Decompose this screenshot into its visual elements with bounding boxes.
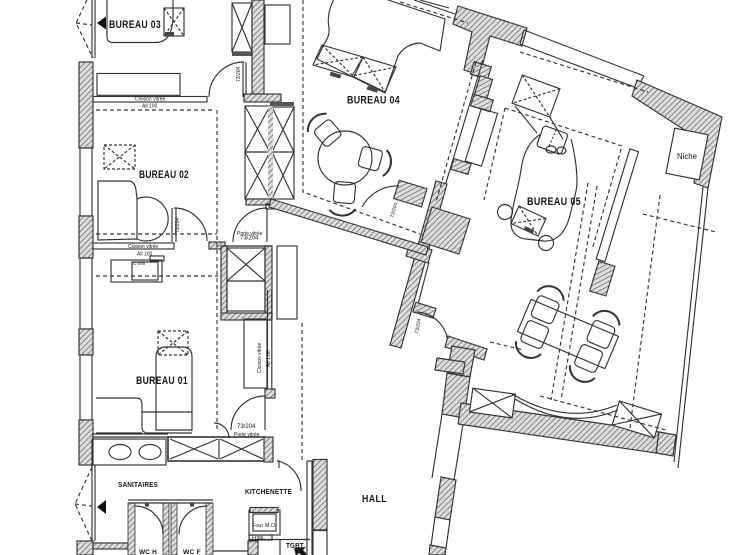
svg-text:BUREAU 04: BUREAU 04 <box>347 95 400 107</box>
svg-text:All 100: All 100 <box>142 104 158 110</box>
svg-text:WC F: WC F <box>183 549 201 555</box>
svg-text:SANITAIRES: SANITAIRES <box>118 480 158 489</box>
svg-text:BUREAU 02: BUREAU 02 <box>139 169 189 181</box>
svg-text:Niche: Niche <box>677 152 698 161</box>
svg-text:Cloison vitrée: Cloison vitrée <box>128 244 159 250</box>
svg-text:Porte vitrée: Porte vitrée <box>234 432 260 438</box>
svg-text:Frigo.: Frigo. <box>252 535 265 541</box>
svg-text:WC H: WC H <box>139 549 157 555</box>
svg-text:73/204: 73/204 <box>240 236 259 242</box>
svg-text:BUREAU 01: BUREAU 01 <box>136 375 188 387</box>
svg-text:73/204: 73/204 <box>236 66 242 82</box>
svg-text:73/204: 73/204 <box>237 424 256 430</box>
svg-text:73/204: 73/204 <box>175 217 181 233</box>
svg-text:Four M.O.: Four M.O. <box>252 523 277 529</box>
svg-text:BUREAU 05: BUREAU 05 <box>527 196 581 208</box>
svg-text:Cloison vitrée: Cloison vitrée <box>257 342 263 373</box>
svg-text:KITCHENETTE: KITCHENETTE <box>245 487 292 496</box>
svg-text:Cloison vitrée: Cloison vitrée <box>135 97 166 103</box>
svg-text:O mm: O mm <box>133 261 145 266</box>
svg-text:HALL: HALL <box>362 494 387 505</box>
svg-text:All 100: All 100 <box>137 252 153 258</box>
svg-text:BUREAU 03: BUREAU 03 <box>109 19 161 31</box>
svg-text:All 1:00: All 1:00 <box>266 350 272 367</box>
svg-text:TGBT: TGBT <box>286 543 304 550</box>
